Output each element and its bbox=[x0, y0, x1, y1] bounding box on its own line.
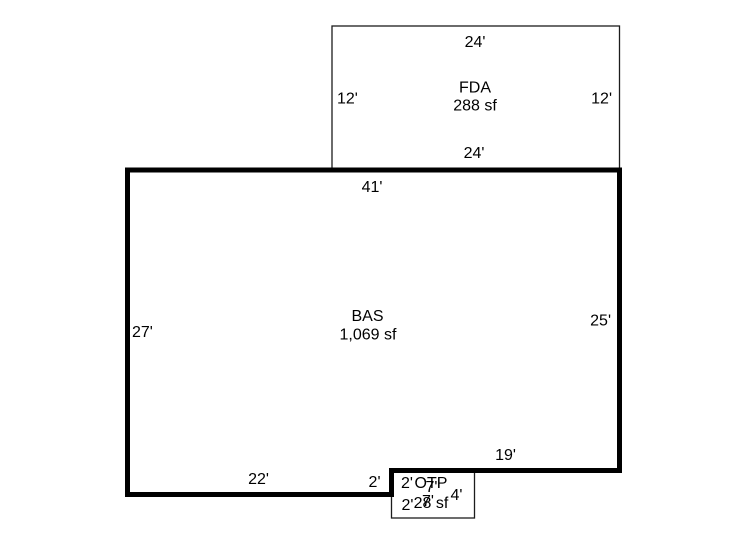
svg-text:2': 2' bbox=[402, 497, 414, 514]
svg-text:4': 4' bbox=[451, 487, 463, 504]
svg-text:22': 22' bbox=[248, 471, 269, 488]
svg-text:41': 41' bbox=[362, 179, 383, 196]
svg-text:12': 12' bbox=[591, 91, 612, 108]
svg-text:19': 19' bbox=[495, 447, 516, 464]
svg-text:24': 24' bbox=[464, 145, 485, 162]
svg-text:1,069 sf: 1,069 sf bbox=[340, 327, 397, 344]
svg-text:7': 7' bbox=[422, 493, 434, 510]
svg-text:27': 27' bbox=[132, 324, 153, 341]
svg-text:2': 2' bbox=[401, 475, 413, 492]
svg-text:12': 12' bbox=[337, 91, 358, 108]
svg-text:BAS: BAS bbox=[351, 308, 383, 325]
svg-text:25': 25' bbox=[590, 313, 611, 330]
svg-text:288 sf: 288 sf bbox=[453, 98, 497, 115]
svg-text:FDA: FDA bbox=[459, 80, 491, 97]
svg-text:2': 2' bbox=[369, 474, 381, 491]
svg-text:24': 24' bbox=[465, 34, 486, 51]
